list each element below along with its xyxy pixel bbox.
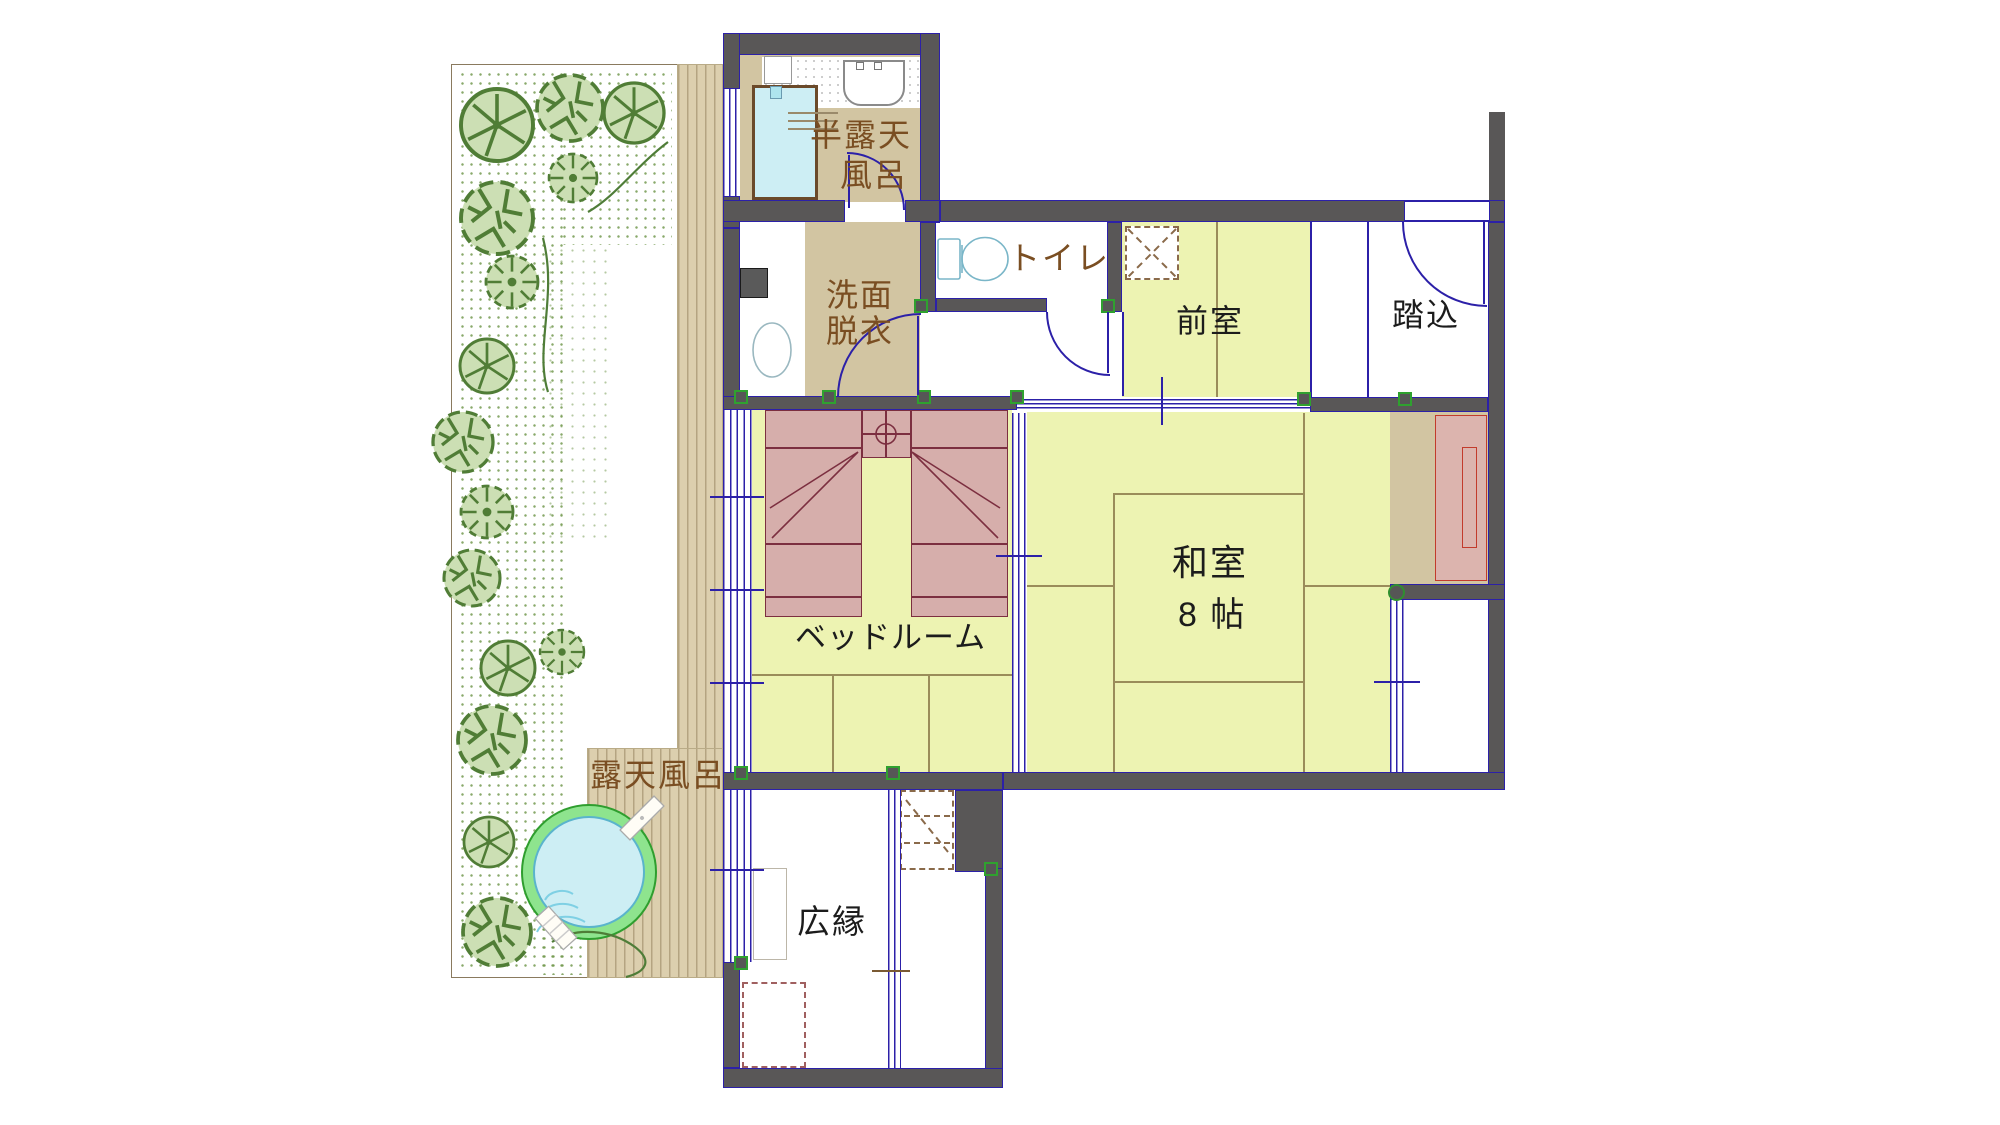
tatami-line bbox=[1113, 681, 1303, 683]
bath-window bbox=[723, 89, 740, 196]
closet-shelf-line bbox=[904, 842, 950, 844]
door-tick bbox=[996, 555, 1042, 557]
bath-tap bbox=[770, 86, 782, 99]
tatami-line bbox=[1303, 413, 1305, 772]
label-half-open-air-bath-line1: 半露天 bbox=[810, 119, 912, 151]
veranda-dashed-area bbox=[742, 982, 806, 1068]
window-tick bbox=[710, 682, 764, 684]
wall bbox=[905, 200, 940, 222]
bed-foot-line bbox=[911, 596, 1008, 598]
tokonoma-chest bbox=[1435, 415, 1487, 581]
entry-step-line bbox=[1367, 222, 1369, 397]
wall-stub bbox=[1489, 112, 1505, 200]
wall-connector bbox=[1010, 390, 1024, 404]
bed-blanket-line bbox=[911, 543, 1008, 545]
room-japanese bbox=[1027, 412, 1390, 772]
tatami-line bbox=[1303, 585, 1390, 587]
wall bbox=[723, 33, 740, 89]
anteroom-dashed-closet bbox=[1125, 226, 1179, 280]
label-bedroom: ベッドルーム bbox=[795, 622, 986, 653]
wall bbox=[1489, 200, 1505, 222]
label-entry: 踏込 bbox=[1392, 299, 1460, 331]
wall bbox=[936, 298, 1047, 312]
bed-blanket-line bbox=[765, 543, 862, 545]
corridor bbox=[936, 312, 1122, 396]
floor-plan: 半露天 風呂 洗面 脱衣 トイレ 前室 踏込 和室 8 帖 ベッドルーム 広縁 … bbox=[0, 0, 2000, 1125]
door-tick bbox=[872, 970, 910, 972]
sliding-door-horizontal bbox=[1017, 399, 1310, 411]
wall bbox=[985, 868, 1003, 1088]
veranda-chair bbox=[753, 868, 787, 960]
wall bbox=[1390, 584, 1505, 600]
bed-headboard-line bbox=[765, 447, 862, 449]
bed-headboard-line bbox=[911, 447, 1008, 449]
wall-block bbox=[955, 790, 1003, 872]
bed-foot-line bbox=[765, 596, 862, 598]
floor-line bbox=[928, 675, 930, 772]
label-washroom-line1: 洗面 bbox=[826, 279, 894, 311]
door-tick bbox=[1374, 681, 1420, 683]
label-japanese-room: 和室 bbox=[1172, 545, 1248, 581]
wall bbox=[723, 228, 740, 410]
nightstand-line bbox=[862, 433, 911, 435]
wall-connector bbox=[886, 766, 900, 780]
floor-line bbox=[752, 674, 1012, 676]
washer-pan bbox=[740, 268, 768, 298]
wall-connector-round bbox=[1388, 584, 1405, 601]
label-open-air-bath: 露天風呂 bbox=[590, 759, 726, 791]
closet-dashed bbox=[900, 790, 954, 870]
bath-step bbox=[764, 56, 792, 84]
partition-line bbox=[1122, 312, 1124, 396]
label-half-open-air-bath-line2: 風呂 bbox=[840, 159, 908, 191]
towel-rack bbox=[788, 112, 838, 114]
closet-shelf-line bbox=[904, 815, 950, 817]
wall-connector bbox=[1297, 392, 1311, 406]
wall bbox=[940, 200, 1405, 222]
label-veranda: 広縁 bbox=[797, 905, 867, 938]
door-threshold bbox=[1405, 220, 1489, 222]
wall bbox=[723, 200, 845, 222]
wall-connector bbox=[1101, 299, 1115, 313]
wall-connector bbox=[917, 390, 931, 404]
label-washroom-line2: 脱衣 bbox=[826, 315, 894, 347]
door-tick bbox=[1161, 377, 1163, 425]
wall bbox=[723, 772, 1003, 790]
open-air-bathtub-water bbox=[533, 816, 645, 928]
tokonoma-chest-inner bbox=[1462, 447, 1477, 548]
floor-line bbox=[832, 675, 834, 772]
garden-gravel-texture bbox=[560, 70, 672, 245]
entry-step-strip bbox=[1310, 222, 1367, 397]
wall-connector bbox=[1398, 392, 1412, 406]
wall bbox=[723, 396, 1017, 410]
bathtub bbox=[752, 85, 818, 200]
bed-right bbox=[911, 410, 1008, 617]
label-toilet: トイレ bbox=[1008, 242, 1110, 274]
wall-connector bbox=[734, 390, 748, 404]
garden-gravel-texture bbox=[545, 245, 607, 545]
label-anteroom: 前室 bbox=[1176, 305, 1244, 337]
wall bbox=[723, 33, 940, 55]
sliding-door-vertical bbox=[1390, 600, 1404, 772]
sliding-door-vertical bbox=[1012, 413, 1027, 772]
partition-line bbox=[1310, 222, 1312, 397]
bed-left bbox=[765, 410, 862, 617]
window-tick bbox=[710, 869, 764, 871]
wall-connector bbox=[822, 390, 836, 404]
faucet-icon bbox=[874, 62, 882, 70]
tatami-line bbox=[1027, 585, 1113, 587]
wall bbox=[920, 33, 940, 223]
window-tick bbox=[710, 589, 764, 591]
door-threshold bbox=[1405, 200, 1489, 202]
veranda-right bbox=[1390, 600, 1488, 772]
faucet-icon bbox=[856, 62, 864, 70]
label-japanese-room-size: 8 帖 bbox=[1178, 598, 1246, 632]
window-tick bbox=[710, 496, 764, 498]
wall bbox=[723, 1068, 1003, 1088]
wall bbox=[723, 962, 740, 1068]
wall-connector bbox=[734, 766, 748, 780]
tatami-line bbox=[1113, 493, 1303, 495]
veranda-window-band bbox=[723, 790, 752, 962]
sliding-door-vertical bbox=[888, 790, 901, 1068]
wall-connector bbox=[734, 956, 748, 970]
tatami-line bbox=[1113, 493, 1115, 772]
wall-connector bbox=[914, 299, 928, 313]
wall-connector bbox=[984, 862, 998, 876]
wall bbox=[1003, 772, 1505, 790]
room-washroom-white bbox=[740, 222, 805, 396]
wall bbox=[1488, 222, 1505, 790]
